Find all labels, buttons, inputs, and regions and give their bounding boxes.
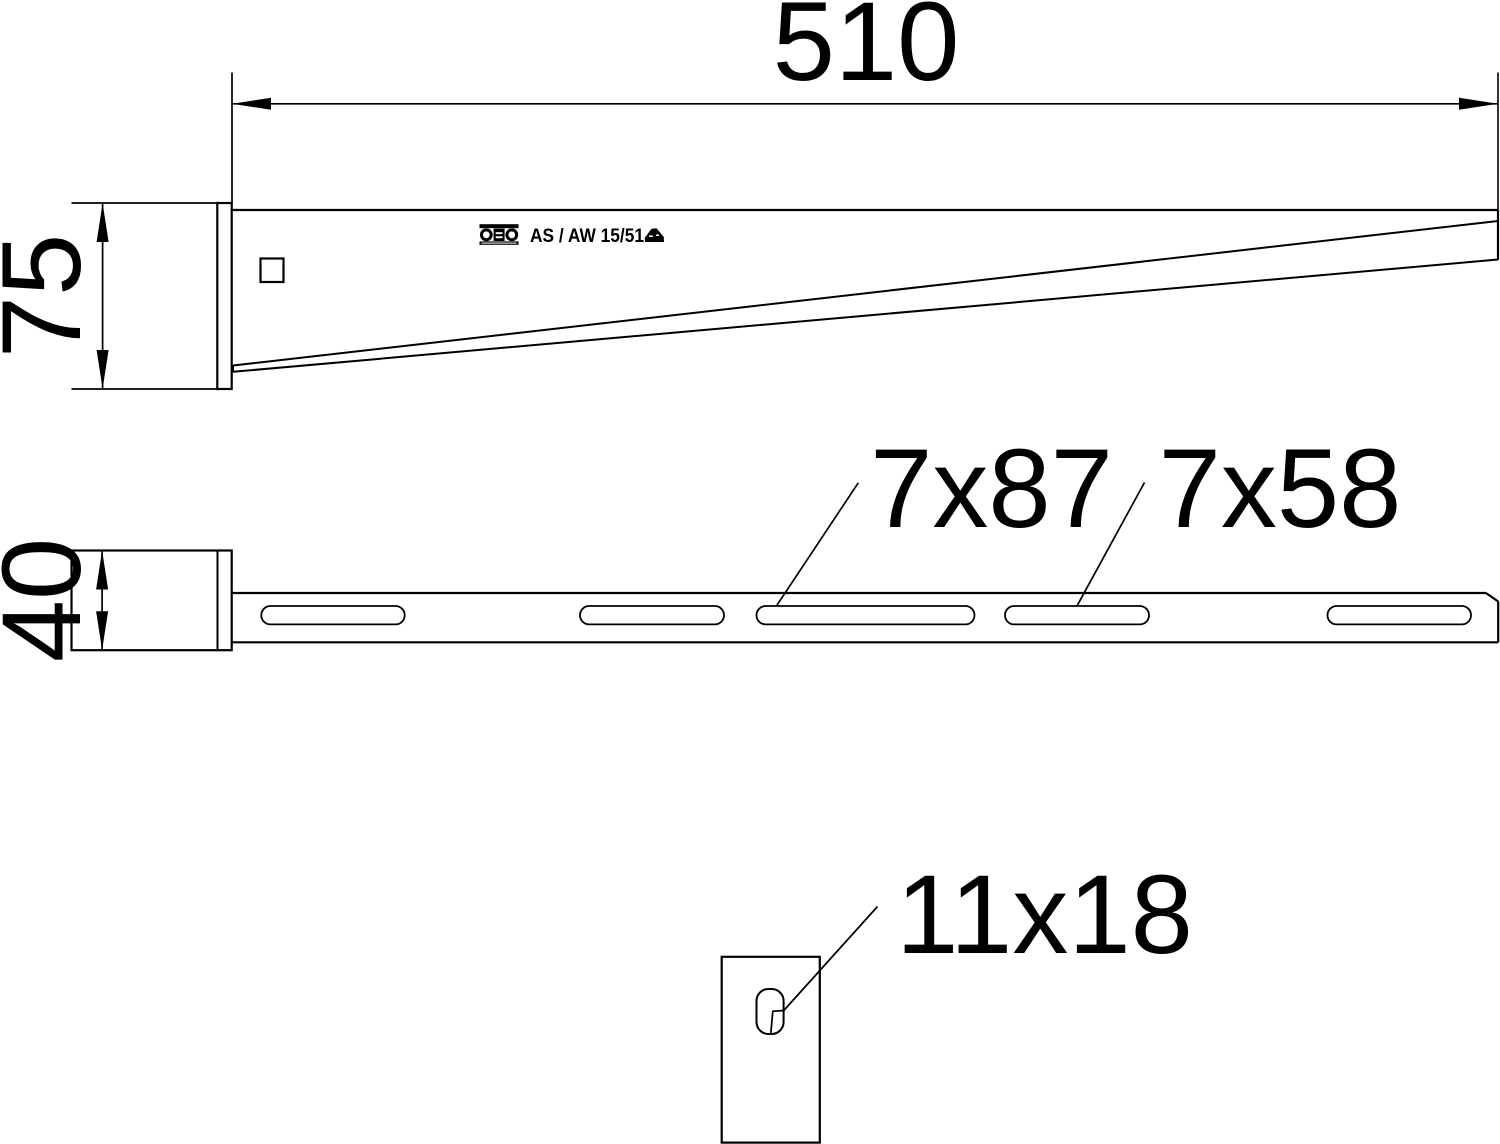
svg-text:7x58: 7x58 xyxy=(1159,426,1402,551)
svg-text:AS / AW 15/51: AS / AW 15/51 xyxy=(530,226,644,247)
svg-text:75: 75 xyxy=(0,234,104,359)
svg-text:11x18: 11x18 xyxy=(896,852,1193,977)
svg-text:7x87: 7x87 xyxy=(870,426,1113,551)
svg-text:40: 40 xyxy=(0,538,104,663)
svg-text:510: 510 xyxy=(773,0,960,104)
